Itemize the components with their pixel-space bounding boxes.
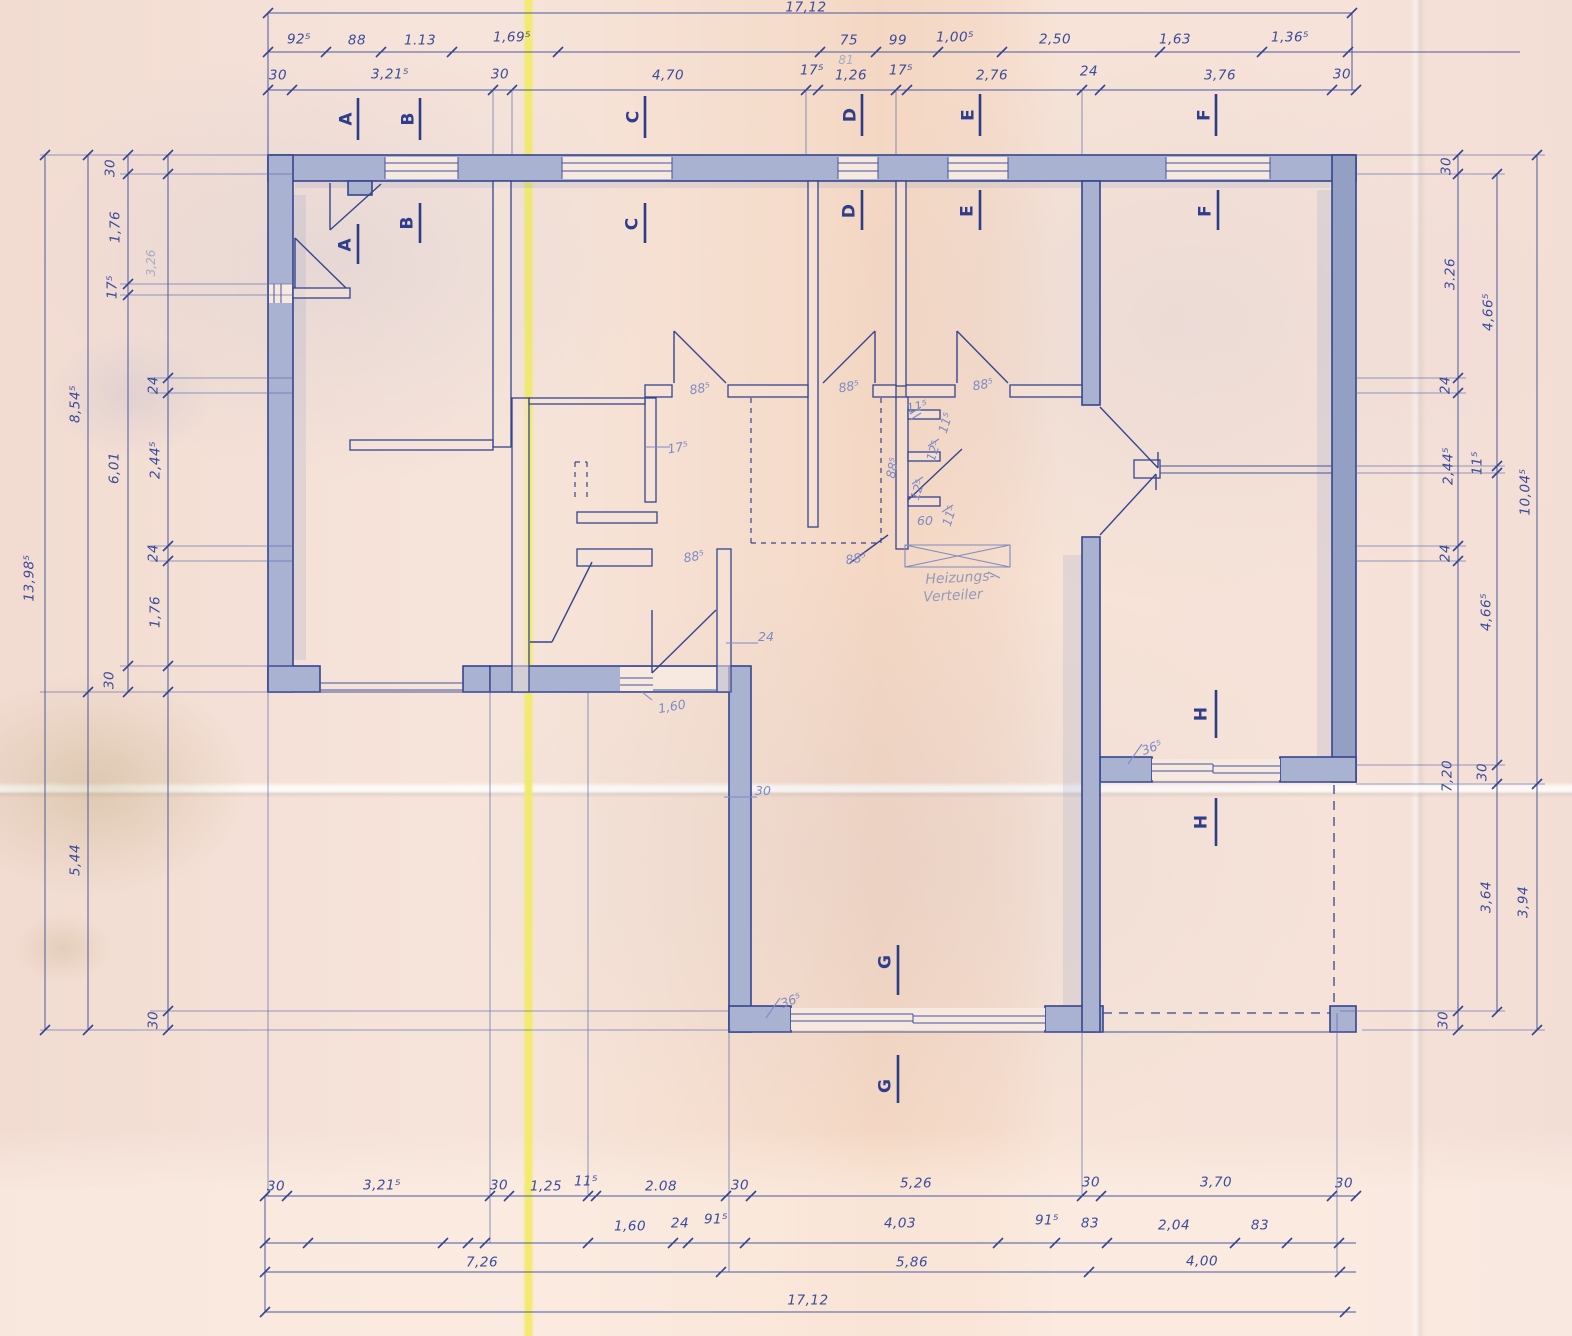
dimension-label: 91⁵: [1035, 1214, 1059, 1228]
dimension-label: 4,00: [1186, 1255, 1218, 1269]
section-label: A: [339, 112, 356, 125]
dimension-label: 88: [348, 34, 366, 48]
dimension-label: 30: [1082, 1176, 1100, 1190]
dimension-label: 30: [104, 159, 118, 177]
dimension-label: 30: [1333, 68, 1351, 82]
dimension-label: 1,63: [1159, 33, 1191, 47]
blueprint-scan: 17,1292⁵881.131,69⁵7581991,00⁵2,501,631,…: [0, 0, 1572, 1336]
dimension-label: 24: [1439, 544, 1453, 562]
dimension-label: 1.13: [404, 34, 436, 48]
dashed-lines: [575, 398, 1334, 1013]
dimension-label: 24: [1080, 65, 1098, 79]
dimension-label: 4,66⁵: [1482, 293, 1496, 331]
floor-plan-linework: [0, 0, 1572, 1336]
section-label: A: [338, 238, 355, 251]
dimension-label: 24: [1439, 376, 1453, 394]
section-label: D: [842, 204, 859, 218]
dimension-label: 11⁵: [1471, 451, 1485, 475]
dimension-label: 30: [103, 671, 117, 689]
dimension-label: 1,60: [614, 1220, 646, 1234]
dimension-label: 30: [269, 69, 287, 83]
dimension-label: 30: [1476, 763, 1490, 781]
dimension-label: 5,44: [69, 844, 83, 876]
dimension-label: 2,76: [976, 69, 1008, 83]
dimension-label: 4,70: [652, 69, 684, 83]
dimension-label: 30: [147, 1011, 161, 1029]
dimension-label: 17⁵: [800, 64, 824, 78]
dimension-label: 4,03: [884, 1217, 916, 1231]
dimension-label: 7,26: [466, 1256, 498, 1270]
dimension-label: 3,21⁵: [363, 1179, 401, 1193]
dimension-label: 1,26: [835, 69, 867, 83]
dimension-label: 30: [267, 1180, 285, 1194]
dimension-label: 4,66⁵: [1480, 593, 1494, 631]
section-label: B: [401, 113, 418, 126]
handwritten-dimension: 30: [755, 785, 771, 798]
dimension-label: 7,20: [1441, 760, 1455, 792]
dimension-label: 1,76: [109, 211, 123, 243]
section-label: F: [1197, 109, 1214, 121]
pencil-annotation: 81: [838, 54, 853, 66]
dimension-label: 6,01: [108, 452, 122, 484]
section-label: G: [878, 1079, 895, 1093]
dimension-label: 11⁵: [574, 1175, 598, 1189]
dimension-label: 17,12: [787, 1294, 828, 1308]
dimension-label: 3,70: [1200, 1176, 1232, 1190]
dimension-label: 2,04: [1158, 1219, 1190, 1233]
section-label: C: [626, 111, 643, 123]
dimension-label: 3.26: [1444, 258, 1458, 290]
dimension-label: 30: [731, 1179, 749, 1193]
dimension-label: 5,26: [900, 1177, 932, 1191]
dimension-label: 17,12: [785, 1, 826, 15]
dimension-label: 75: [840, 34, 858, 48]
dimension-label: 30: [491, 68, 509, 82]
dimension-label: 1,69⁵: [493, 31, 531, 45]
dimension-label: 2,44⁵: [1442, 447, 1456, 485]
dimension-label: 2.08: [645, 1180, 677, 1194]
dimension-label: 17⁵: [106, 275, 120, 299]
dimension-label: 1,25: [530, 1180, 562, 1194]
dimension-label: 83: [1251, 1219, 1269, 1233]
dimension-label: 30: [490, 1179, 508, 1193]
dimension-label: 3,76: [1204, 69, 1236, 83]
section-label: H: [1194, 815, 1211, 829]
dimension-label: 30: [1335, 1177, 1353, 1191]
dimension-label: 91⁵: [704, 1213, 728, 1227]
dimension-label: 17⁵: [889, 64, 913, 78]
handwritten-dimension: 60: [917, 515, 933, 528]
dimension-label: 83: [1081, 1217, 1099, 1231]
handwritten-dimension: 24: [758, 631, 774, 644]
dimension-label: 24: [671, 1217, 689, 1231]
section-label: E: [960, 205, 977, 217]
dimension-label: 3,64: [1480, 881, 1494, 913]
section-label: F: [1198, 205, 1215, 217]
dimension-label: 24: [147, 376, 161, 394]
dimension-label: 30: [1440, 157, 1454, 175]
handwritten-annotation: Heizungs-: [925, 569, 995, 587]
dimension-label: 2,44⁵: [149, 441, 163, 479]
dimension-label: 1,76: [149, 596, 163, 628]
dimension-label: 1,00⁵: [936, 31, 974, 45]
dimension-label: 99: [889, 34, 907, 48]
section-label: D: [843, 108, 860, 122]
interior-walls: [268, 181, 1356, 1032]
section-label: B: [400, 217, 417, 230]
dimension-label: 2,50: [1039, 33, 1071, 47]
dimension-label: 5,86: [896, 1256, 928, 1270]
dimension-label: 8,54⁵: [69, 385, 83, 423]
section-label: C: [625, 218, 642, 230]
dimension-label: 10,04⁵: [1519, 468, 1533, 515]
dimension-label: 24: [147, 544, 161, 562]
dimension-label: 30: [1437, 1011, 1451, 1029]
handwritten-annotation: Verteiler: [923, 587, 983, 604]
section-label: H: [1194, 707, 1211, 721]
dimension-label: 3,94: [1517, 886, 1531, 918]
dimension-label: 92⁵: [287, 33, 311, 47]
dimension-label: 1,36⁵: [1271, 31, 1309, 45]
pencil-annotation: 3,26: [145, 250, 157, 277]
section-label: E: [961, 109, 978, 121]
dimension-label: 13,98⁵: [23, 554, 37, 601]
dimension-ticks: [40, 8, 1542, 1317]
dimension-label: 3,21⁵: [371, 68, 409, 82]
windows: [269, 157, 1280, 1030]
section-label: G: [878, 955, 895, 969]
